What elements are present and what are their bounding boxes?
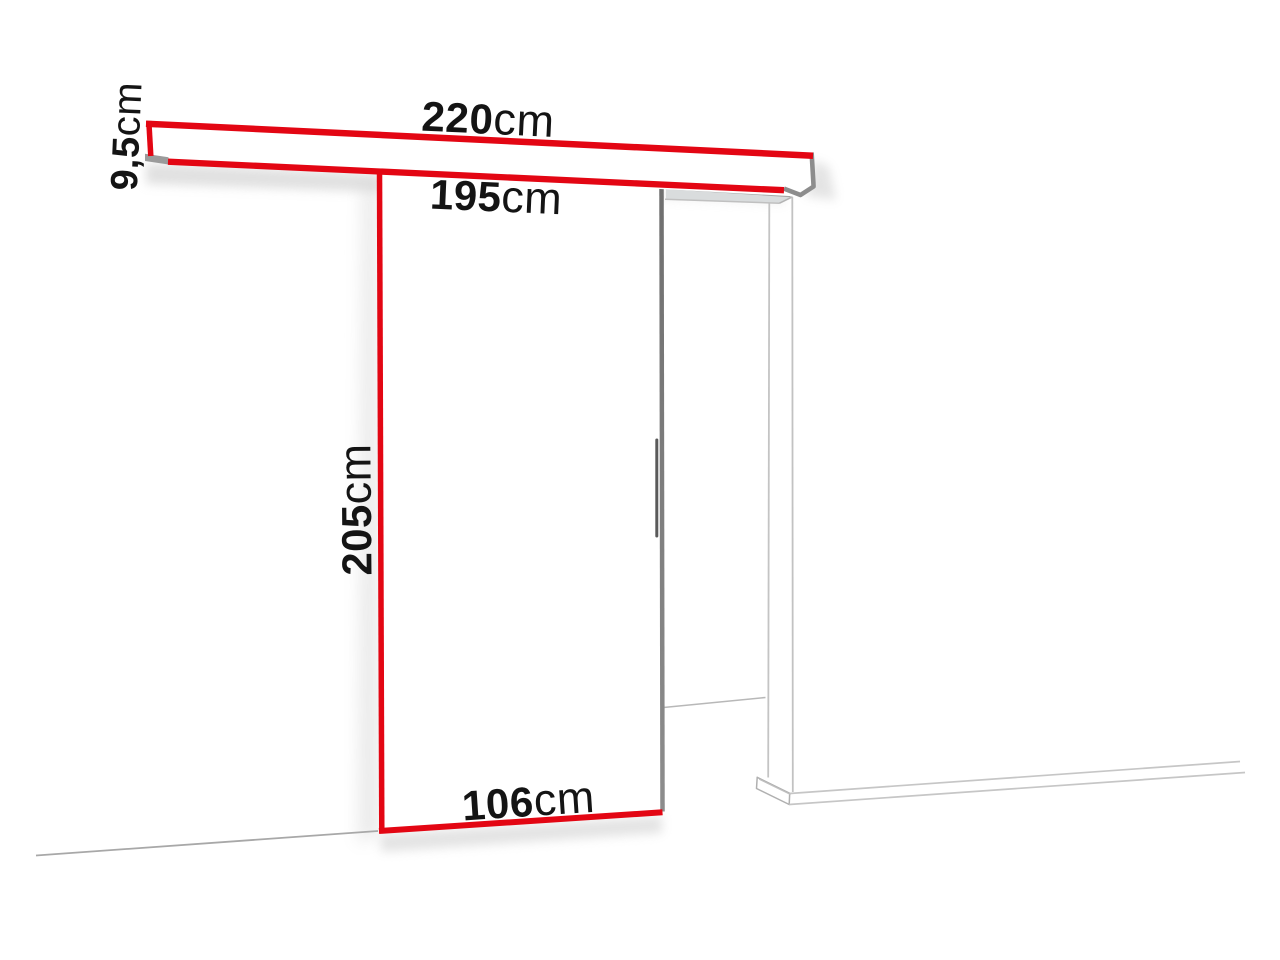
svg-text:220cm: 220cm [421, 90, 556, 147]
svg-text:195cm: 195cm [429, 168, 563, 225]
svg-text:9,5cm: 9,5cm [102, 81, 151, 191]
svg-text:205cm: 205cm [329, 443, 381, 576]
